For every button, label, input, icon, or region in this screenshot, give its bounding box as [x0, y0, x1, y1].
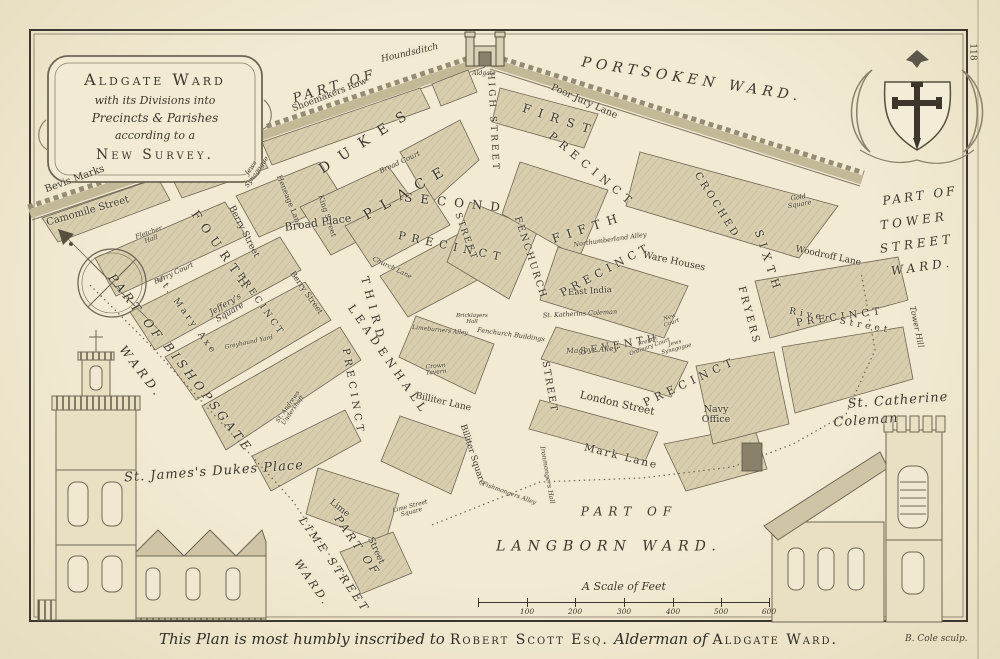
- map-plate: Aldgate Ward with its Divisions into Pre…: [0, 0, 1000, 659]
- map-subtitle-2: Precincts & Parishes: [52, 111, 258, 125]
- scale-tick: [575, 598, 576, 607]
- dedication-ward: Aldgate Ward.: [713, 632, 838, 648]
- scale-bar-title: A Scale of Feet: [478, 580, 770, 593]
- scale-tick: [527, 598, 528, 607]
- scale-number: 100: [520, 607, 534, 616]
- navy-office-building-icon: [742, 443, 762, 471]
- scale-number: 500: [714, 607, 728, 616]
- dedication-name: Robert Scott Esq.: [450, 632, 609, 648]
- map-title: Aldgate Ward: [52, 70, 258, 89]
- scale-tick: [478, 598, 479, 607]
- scale-tick: [721, 598, 722, 607]
- dedication-script-2: Alderman of: [614, 630, 707, 648]
- scale-tick: [624, 598, 625, 607]
- church-st-catherine-illustration: [764, 416, 945, 622]
- scale-number: 300: [617, 607, 631, 616]
- place-label-bricklayers-hall: Bricklayers Hall: [450, 314, 494, 326]
- map-subtitle-1: with its Divisions into: [52, 94, 258, 107]
- map-subtitle-3: according to a: [52, 129, 258, 142]
- scale-tick: [673, 598, 674, 607]
- scale-bar: A Scale of Feet 100 200 300 400 500 600: [478, 580, 770, 618]
- scale-tick: [769, 598, 770, 607]
- map-subtitle-4: New Survey.: [52, 147, 258, 163]
- ward-label-langborn-part: PART OF: [581, 506, 677, 519]
- title-cartouche: Aldgate Ward with its Divisions into Pre…: [52, 60, 258, 178]
- aldgate-gate-icon: [465, 32, 505, 66]
- dedication-script-1: This Plan is most humbly inscribed to: [159, 630, 445, 648]
- scale-number: 400: [666, 607, 680, 616]
- engraver-signature: B. Cole sculp.: [905, 634, 968, 644]
- scale-number: 200: [568, 607, 582, 616]
- plate-number: 118: [967, 43, 976, 60]
- scale-number: 600: [762, 607, 776, 616]
- dedication-line: This Plan is most humbly inscribed to Ro…: [30, 629, 967, 648]
- place-label-aldgate: Aldgate: [472, 71, 495, 77]
- place-label-navy-office: Navy Office: [694, 405, 738, 425]
- ward-label-langborn: LANGBORN WARD.: [496, 540, 722, 555]
- bird-crest-icon: [906, 50, 929, 68]
